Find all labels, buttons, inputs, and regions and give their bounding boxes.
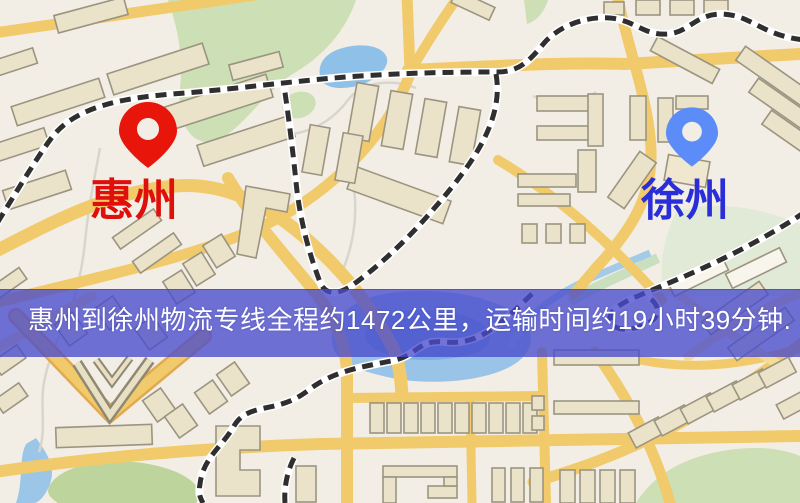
destination-label: 徐州 bbox=[641, 179, 729, 223]
origin-pin-icon bbox=[119, 102, 177, 168]
route-info-banner: 惠州到徐州物流专线全程约1472公里，运输时间约19小时39分钟. bbox=[0, 289, 800, 357]
route-info-text: 惠州到徐州物流专线全程约1472公里，运输时间约19小时39分钟. bbox=[28, 300, 791, 337]
destination-pin-icon bbox=[666, 106, 718, 168]
origin-label: 惠州 bbox=[90, 179, 178, 223]
map-canvas bbox=[0, 0, 800, 503]
map-image: 惠州到徐州物流专线全程约1472公里，运输时间约19小时39分钟. 惠州 徐州 bbox=[0, 0, 800, 503]
